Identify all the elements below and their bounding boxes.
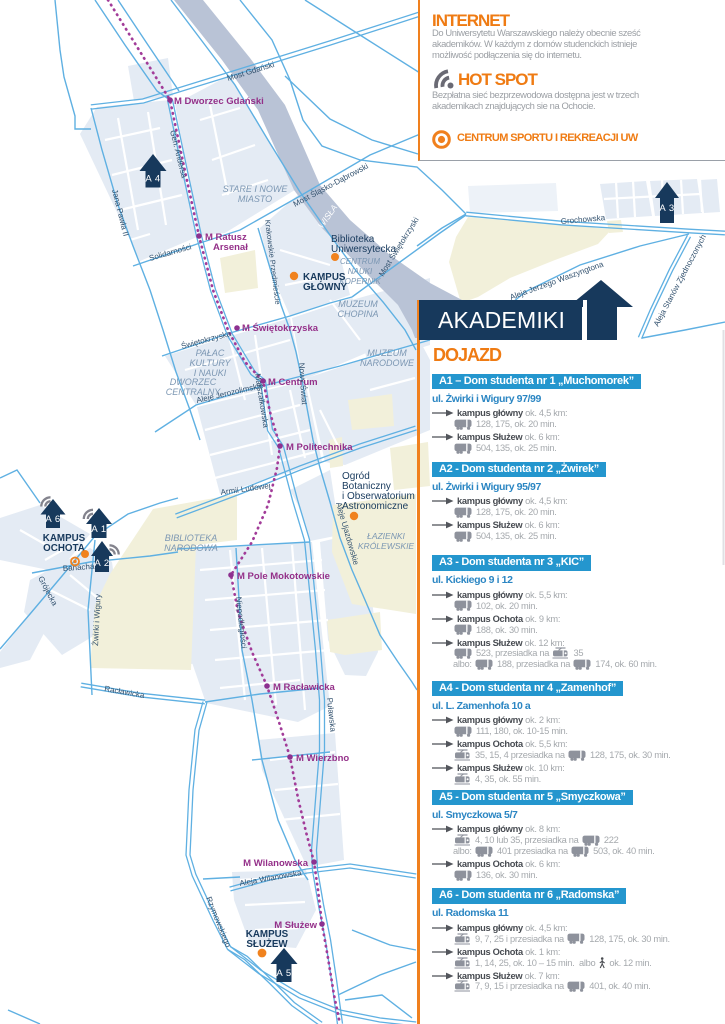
svg-text:A 3: A 3 xyxy=(659,203,674,214)
svg-text:Puławska: Puławska xyxy=(325,697,338,733)
svg-text:M Politechnika: M Politechnika xyxy=(286,442,353,453)
svg-text:M Pole Mokotowskie: M Pole Mokotowskie xyxy=(237,571,330,582)
svg-text:CENTRUM: CENTRUM xyxy=(340,257,380,266)
svg-text:M Wierzbno: M Wierzbno xyxy=(296,753,349,764)
svg-text:KRÓLEWSKIE: KRÓLEWSKIE xyxy=(358,541,415,551)
svg-text:A 5: A 5 xyxy=(276,968,291,979)
svg-text:Rzymowskiego: Rzymowskiego xyxy=(204,895,233,949)
svg-text:ŁAZIENKI: ŁAZIENKI xyxy=(367,531,405,541)
svg-text:M Wilanowska: M Wilanowska xyxy=(243,858,309,869)
svg-text:Racławicka: Racławicka xyxy=(104,684,146,700)
svg-text:MUZEUM: MUZEUM xyxy=(367,348,407,358)
svg-text:M Racławicka: M Racławicka xyxy=(273,682,335,693)
svg-text:STARE I NOWE: STARE I NOWE xyxy=(223,184,289,194)
svg-text:CHOPINA: CHOPINA xyxy=(337,309,378,319)
svg-text:A 4: A 4 xyxy=(145,174,160,185)
svg-text:M Centrum: M Centrum xyxy=(268,377,318,388)
svg-text:M Świętokrzyska: M Świętokrzyska xyxy=(242,322,319,334)
svg-text:SŁUŻEW: SŁUŻEW xyxy=(246,939,288,950)
svg-text:A 2: A 2 xyxy=(94,558,109,569)
svg-text:MUZEUM: MUZEUM xyxy=(338,299,378,309)
svg-text:A 6: A 6 xyxy=(45,514,60,525)
svg-text:MIASTO: MIASTO xyxy=(238,194,272,204)
svg-text:Astronomiczne: Astronomiczne xyxy=(342,501,409,512)
svg-text:OCHOTA: OCHOTA xyxy=(43,543,85,554)
svg-text:PAŁAC: PAŁAC xyxy=(196,348,225,358)
svg-text:BIBLIOTEKA: BIBLIOTEKA xyxy=(165,533,218,543)
svg-text:Aleja Stanów Zjednoczonych: Aleja Stanów Zjednoczonych xyxy=(652,233,708,328)
svg-text:M Dworzec Gdański: M Dworzec Gdański xyxy=(174,96,264,107)
svg-text:A 1: A 1 xyxy=(91,524,106,535)
svg-text:DWORZEC: DWORZEC xyxy=(170,377,217,387)
svg-text:Arsenał: Arsenał xyxy=(213,242,248,253)
svg-text:KULTURY: KULTURY xyxy=(189,358,231,368)
svg-text:Uniwersytecka: Uniwersytecka xyxy=(331,244,396,255)
svg-text:NARODOWA: NARODOWA xyxy=(164,543,218,553)
svg-text:CENTRALNY: CENTRALNY xyxy=(166,387,222,397)
svg-text:NARODOWE: NARODOWE xyxy=(360,358,415,368)
svg-text:NAUKI: NAUKI xyxy=(348,267,373,276)
svg-text:GŁÓWNY: GŁÓWNY xyxy=(303,281,348,293)
